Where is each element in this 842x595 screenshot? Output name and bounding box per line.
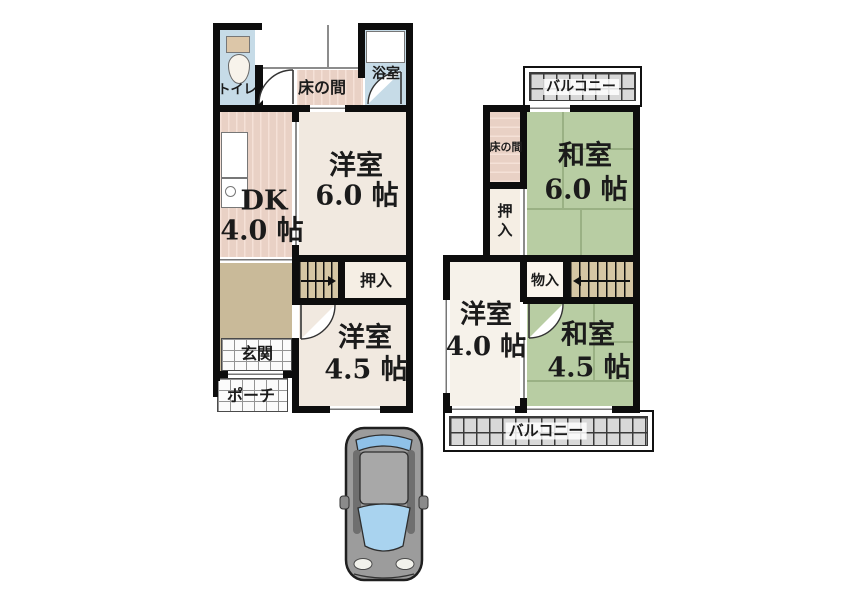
door-arc-icon <box>258 69 294 105</box>
stairs-arrow-icon <box>572 275 632 287</box>
storage-label: 物入 <box>531 274 559 288</box>
kitchen-faucet-icon <box>225 186 236 197</box>
kitchen-counter-icon <box>221 132 248 178</box>
tokonoma-1f-label: 床の間 <box>298 80 346 96</box>
void-boundary-line <box>327 25 329 67</box>
western45-name-label: 洋室 <box>338 325 392 352</box>
window-marker <box>330 406 380 413</box>
balcony-door <box>452 406 515 413</box>
japanese6-name-label: 和室 <box>558 143 612 170</box>
japanese6-size-label: 6.0 帖 <box>544 177 627 204</box>
wall <box>292 262 299 303</box>
wall <box>443 255 640 262</box>
tokonoma-sliding-door <box>310 105 345 112</box>
wall <box>520 262 527 302</box>
bathtub-icon <box>366 31 405 63</box>
balcony-top-label: バルコニー <box>543 79 619 95</box>
dk-size-label: 4.0 帖 <box>220 218 303 245</box>
western4-size-label: 4.0 帖 <box>446 334 526 360</box>
entrance-label: 玄関 <box>241 346 273 362</box>
dk-sliding-door <box>220 257 292 263</box>
wall <box>213 23 262 30</box>
balcony-bottom-label: バルコニー <box>506 423 587 440</box>
porch-label: ポーチ <box>227 388 275 404</box>
stairs-arrow-icon <box>299 275 337 287</box>
bath-label: 浴室 <box>372 67 400 81</box>
entrance-door <box>228 371 283 378</box>
western6-size-label: 6.0 帖 <box>315 183 398 210</box>
tatami-line <box>580 208 582 255</box>
western4-name-label: 洋室 <box>460 302 512 328</box>
wall <box>338 262 345 298</box>
closet-2f-fusuma-line <box>523 189 525 255</box>
wall <box>292 255 413 262</box>
dk-name-label: DK <box>241 188 288 215</box>
floor-plan-canvas: トイレ 床の間 浴室 DK 4.0 帖 洋室 6.0 帖 押入 玄関 ポーチ 洋… <box>0 0 842 595</box>
closet-1f-label: 押入 <box>360 273 392 289</box>
balcony-door <box>530 105 570 112</box>
car-top-view-icon <box>340 424 428 586</box>
wall <box>213 23 220 381</box>
wall <box>563 262 570 298</box>
wall <box>358 30 365 78</box>
door-arc-icon <box>300 304 336 340</box>
toilet-tank-icon <box>226 36 250 53</box>
tokonoma-2f-label: 床の間 <box>490 142 523 153</box>
wall <box>213 371 218 397</box>
toilet-label: トイレ <box>217 84 256 97</box>
balcony-door <box>527 406 612 413</box>
japanese45-name-label: 和室 <box>561 322 615 349</box>
western45-size-label: 4.5 帖 <box>324 357 407 384</box>
japanese45-size-label: 4.5 帖 <box>547 355 630 382</box>
wall <box>358 23 413 30</box>
closet-2f-label: 押入 <box>497 203 512 241</box>
door-arc-icon <box>528 303 564 339</box>
western6-name-label: 洋室 <box>329 153 383 180</box>
wall <box>292 112 299 122</box>
